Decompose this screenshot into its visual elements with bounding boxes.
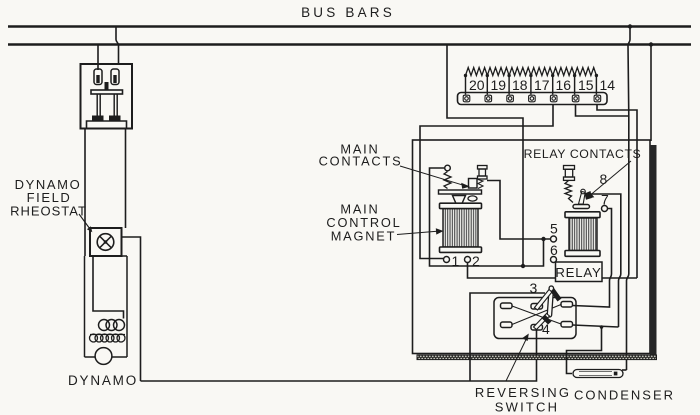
svg-text:5: 5 (550, 221, 558, 237)
svg-text:4: 4 (542, 321, 550, 337)
svg-text:17: 17 (534, 77, 550, 93)
svg-text:SWITCH: SWITCH (495, 400, 559, 415)
svg-text:8: 8 (600, 171, 608, 187)
svg-text:REVERSING: REVERSING (475, 385, 571, 400)
svg-text:19: 19 (491, 77, 507, 93)
svg-text:BUS BARS: BUS BARS (301, 5, 395, 20)
svg-text:DYNAMO: DYNAMO (68, 373, 138, 388)
svg-text:MAGNET: MAGNET (331, 229, 397, 244)
svg-text:CONDENSER: CONDENSER (574, 388, 675, 403)
svg-text:16: 16 (556, 77, 572, 93)
svg-text:18: 18 (512, 77, 528, 93)
svg-text:RELAY: RELAY (555, 265, 601, 280)
svg-text:14: 14 (600, 77, 616, 93)
svg-text:RELAY CONTACTS: RELAY CONTACTS (524, 147, 642, 161)
svg-text:15: 15 (578, 77, 594, 93)
svg-text:20: 20 (469, 77, 485, 93)
svg-text:CONTACTS: CONTACTS (319, 154, 403, 169)
svg-text:6: 6 (550, 242, 558, 258)
svg-text:RHEOSTAT: RHEOSTAT (10, 204, 87, 219)
